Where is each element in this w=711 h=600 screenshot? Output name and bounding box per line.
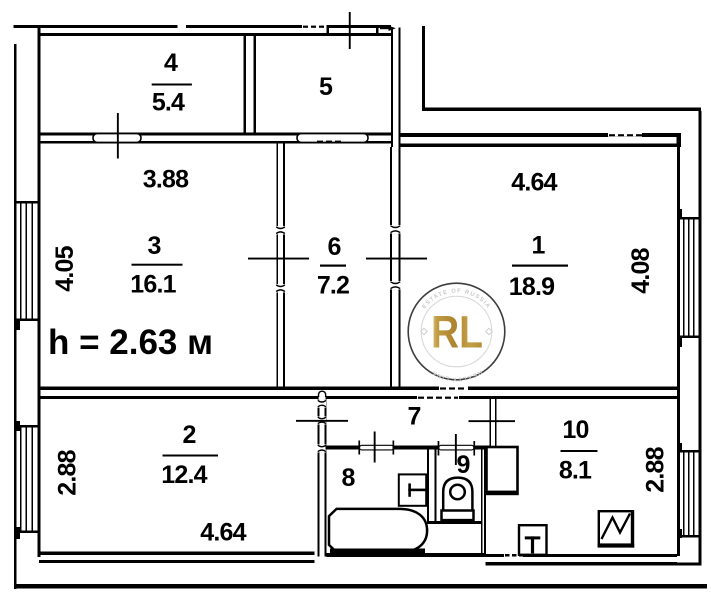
svg-text:3: 3 [147,232,160,260]
svg-text:6: 6 [327,233,340,261]
svg-text:7: 7 [407,403,420,431]
svg-text:12.4: 12.4 [161,461,207,489]
svg-text:RL: RL [431,307,483,358]
svg-text:8: 8 [341,464,355,492]
svg-text:9: 9 [456,451,469,479]
svg-text:4.08: 4.08 [627,247,655,293]
svg-text:8.1: 8.1 [559,457,592,485]
svg-text:16.1: 16.1 [130,271,176,299]
svg-text:1: 1 [531,232,545,260]
svg-text:5: 5 [319,73,333,101]
svg-text:4: 4 [164,49,178,77]
svg-text:4.64: 4.64 [200,519,246,547]
svg-text:18.9: 18.9 [509,273,554,301]
svg-text:4.05: 4.05 [51,245,79,291]
svg-text:h = 2.63 м: h = 2.63 м [48,323,213,362]
svg-text:2.88: 2.88 [642,446,670,492]
svg-text:7.2: 7.2 [317,272,349,300]
svg-text:2: 2 [182,421,195,449]
svg-text:4.64: 4.64 [511,169,557,197]
svg-text:3.88: 3.88 [143,166,189,194]
svg-text:5.4: 5.4 [152,89,185,117]
svg-text:10: 10 [562,416,588,444]
svg-text:2.88: 2.88 [54,449,82,495]
